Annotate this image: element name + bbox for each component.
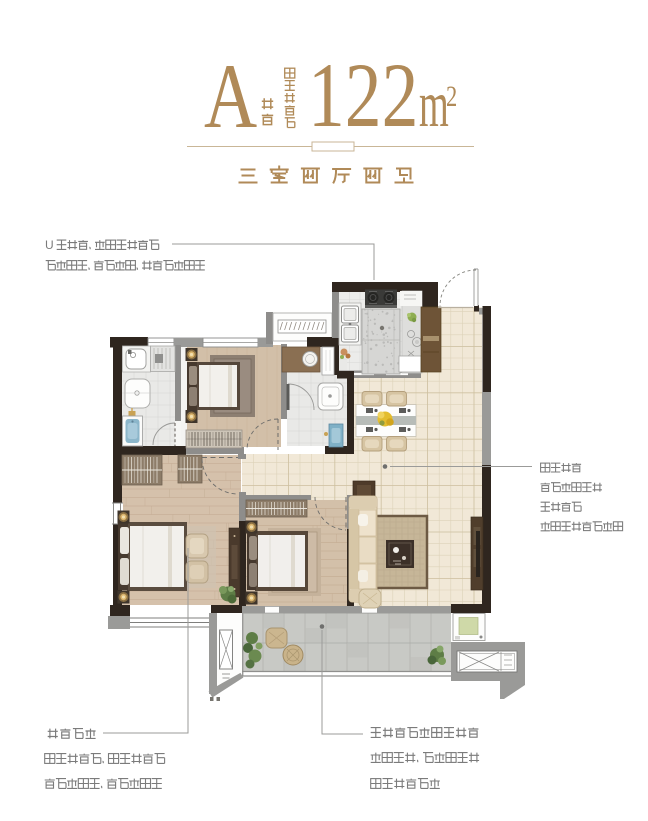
svg-text:U: U [45, 238, 54, 252]
svg-text:2: 2 [446, 79, 457, 113]
svg-text:m: m [419, 67, 449, 140]
svg-text:A: A [204, 46, 257, 148]
svg-text:122: 122 [308, 45, 418, 147]
